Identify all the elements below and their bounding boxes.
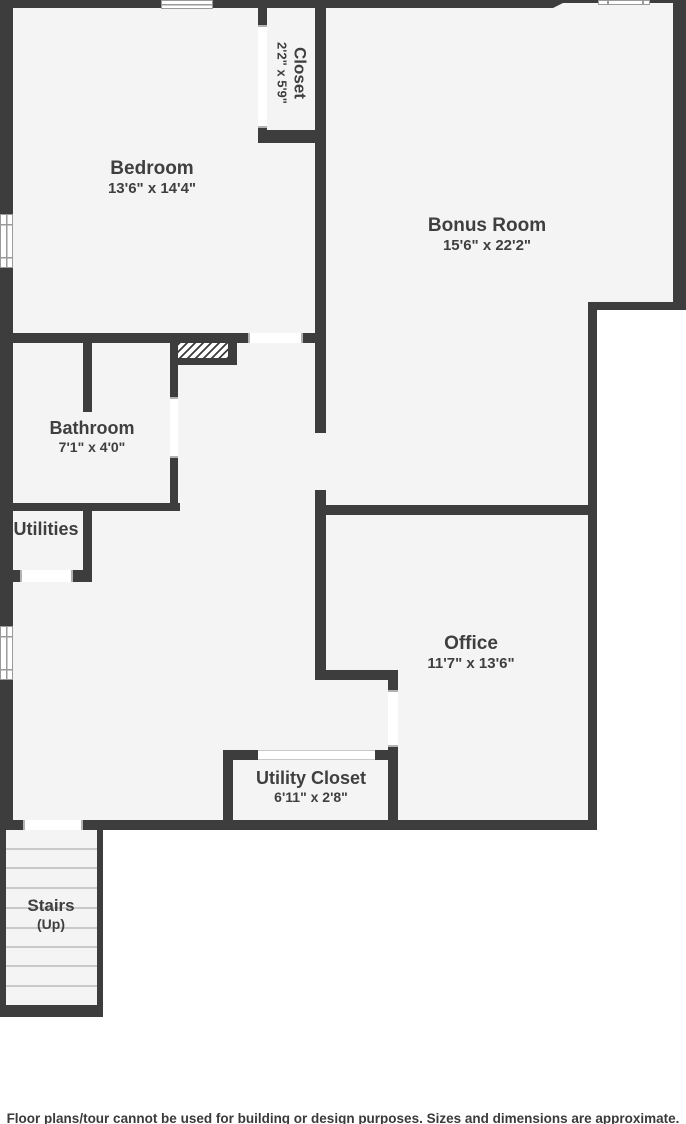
wall-bathroom-bottom [0,503,180,511]
bathroom-door-opening [170,397,178,458]
room-dims: (Up) [27,916,74,933]
floor-plan: Bedroom 13'6" x 14'4" Closet 2'2" x 5'9"… [0,0,686,1124]
room-label-office: Office 11'7" x 13'6" [427,633,514,673]
wall-office-stub [315,490,326,505]
room-label-bathroom: Bathroom 7'1" x 4'0" [50,418,135,455]
room-dims: 13'6" x 14'4" [108,180,196,198]
utilities-door-opening [20,570,73,582]
room-name: Bedroom [108,158,196,180]
bonus-room-top-window [598,0,650,5]
wall-office-top [315,505,597,515]
wall-stairs-right [97,830,103,1013]
wall-office-left [315,515,326,680]
bedroom-door-opening [248,333,303,343]
wall-office-door-upper [388,670,398,690]
hall-left-window [0,626,13,680]
room-name: Stairs [27,896,74,916]
room-dims: 15'6" x 22'2" [428,237,546,255]
room-name: Utilities [13,519,78,540]
wall-right-upper [673,2,686,310]
wall-stairs-bottom [0,1005,103,1017]
room-label-utility-closet: Utility Closet 6'11" x 2'8" [256,768,366,805]
wall-office-jut [315,670,398,680]
office-door-opening [388,690,398,747]
bedroom-top-window [161,0,213,9]
wall-left [0,8,13,830]
utility-closet-opening [258,750,375,760]
room-name: Utility Closet [256,768,366,789]
wall-bottom [0,820,597,830]
stair-tread [6,848,97,850]
stair-tread [6,985,97,987]
wall-utility-closet-left [223,750,233,830]
closet-door-opening [258,25,267,128]
wall-bathroom-stub [83,343,92,412]
room-dims: 6'11" x 2'8" [256,789,366,806]
room-label-stairs: Stairs (Up) [27,896,74,932]
room-dims: 11'7" x 13'6" [427,655,514,673]
room-label-bedroom: Bedroom 13'6" x 14'4" [108,158,196,198]
room-name: Office [427,633,514,655]
stair-void-hatch [178,343,228,358]
wall-bathroom-right-upper [170,333,178,397]
bedroom-left-window [0,214,13,268]
stair-tread [6,965,97,967]
room-name: Bathroom [50,418,135,439]
disclaimer-text: Floor plans/tour cannot be used for buil… [0,1111,686,1124]
wall-right-lower [588,310,597,830]
wall-bedroom-bottom [0,333,248,343]
room-name: Closet [290,42,309,104]
wall-stairs-left [0,830,6,1017]
room-dims: 7'1" x 4'0" [50,439,135,456]
room-dims: 2'2" x 5'9" [274,42,290,104]
wall-right-step [588,302,686,310]
wall-top [0,0,553,8]
wall-bedroom-bottom-right [303,333,315,343]
wall-utility-closet-right [388,760,398,830]
stair-tread [6,867,97,869]
stair-tread [6,946,97,948]
room-label-closet: Closet 2'2" x 5'9" [274,42,309,104]
wall-stairwell-opening-bottom [170,358,237,365]
stairs-door-opening [23,820,83,830]
stair-tread [6,887,97,889]
wall-closet-bottom [258,130,315,143]
floor-area-upper [0,0,686,310]
wall-bedroom-bonus-divider [315,3,326,433]
room-name: Bonus Room [428,215,546,237]
room-label-utilities: Utilities [13,519,78,540]
room-label-bonus-room: Bonus Room 15'6" x 22'2" [428,215,546,255]
